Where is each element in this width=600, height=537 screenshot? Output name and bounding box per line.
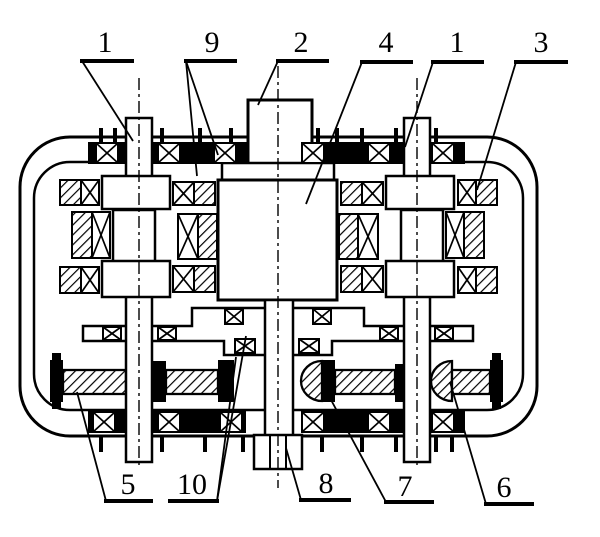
callout-number: 5 <box>121 468 136 501</box>
hatched-gear-block <box>339 214 358 259</box>
callout-3: 3 <box>477 26 568 190</box>
hatched-gear-block <box>72 212 92 258</box>
hub-core <box>401 210 443 262</box>
shaft-end-cap <box>492 401 501 409</box>
shaft-end-cap <box>152 361 166 402</box>
callout-leader-line <box>258 61 278 105</box>
hatched-gear-block <box>60 180 81 205</box>
hatched-gear-block <box>194 266 215 292</box>
callout-leader-line <box>450 382 486 504</box>
shaft-end-cap <box>52 401 61 409</box>
output-shaft <box>265 300 293 437</box>
hatched-gear-block <box>341 182 362 205</box>
hatched-gear-block <box>60 267 81 293</box>
callout-number: 7 <box>398 470 413 503</box>
coupling-boss <box>431 361 452 401</box>
hub-flange <box>102 261 170 297</box>
callout-number: 3 <box>534 26 549 59</box>
shaft-end-cap <box>322 360 335 402</box>
hatched-shaft-segment <box>452 370 490 394</box>
hub-flange <box>102 176 170 209</box>
hatched-shaft-segment <box>166 370 218 394</box>
hatched-shaft-segment <box>63 370 126 394</box>
shaft-end-cap <box>52 353 61 361</box>
callout-number: 8 <box>319 467 334 500</box>
right-gear-hub <box>386 176 454 297</box>
shaft-end-cap <box>492 353 501 361</box>
callout-number: 1 <box>450 26 465 59</box>
shaft-end-cap <box>395 364 404 402</box>
coupling-boss <box>301 361 322 401</box>
left-gear-hub <box>102 176 170 297</box>
hub-core <box>113 210 155 262</box>
hatched-gear-block <box>194 182 215 205</box>
callout-number: 2 <box>294 26 309 59</box>
hatched-gear-block <box>198 214 217 259</box>
shaft-end-cap <box>50 360 63 402</box>
gear-reducer-sectional-drawing: 192413510876 <box>0 0 600 537</box>
callout-number: 9 <box>205 26 220 59</box>
callout-number: 6 <box>497 471 512 504</box>
hatched-gear-block <box>476 267 497 293</box>
callout-number: 4 <box>379 26 394 59</box>
hatched-gear-block <box>341 266 362 292</box>
callout-leader-line <box>82 61 133 141</box>
callout-2: 2 <box>258 26 329 105</box>
hub-flange <box>386 261 454 297</box>
callout-number: 1 <box>98 26 113 59</box>
shaft-end-cap <box>490 360 503 402</box>
drawing-canvas: 192413510876 <box>0 0 600 537</box>
hatched-gear-block <box>464 212 484 258</box>
hatched-shaft-segment <box>335 370 395 394</box>
callout-number: 10 <box>177 468 207 501</box>
hub-flange <box>386 176 454 209</box>
